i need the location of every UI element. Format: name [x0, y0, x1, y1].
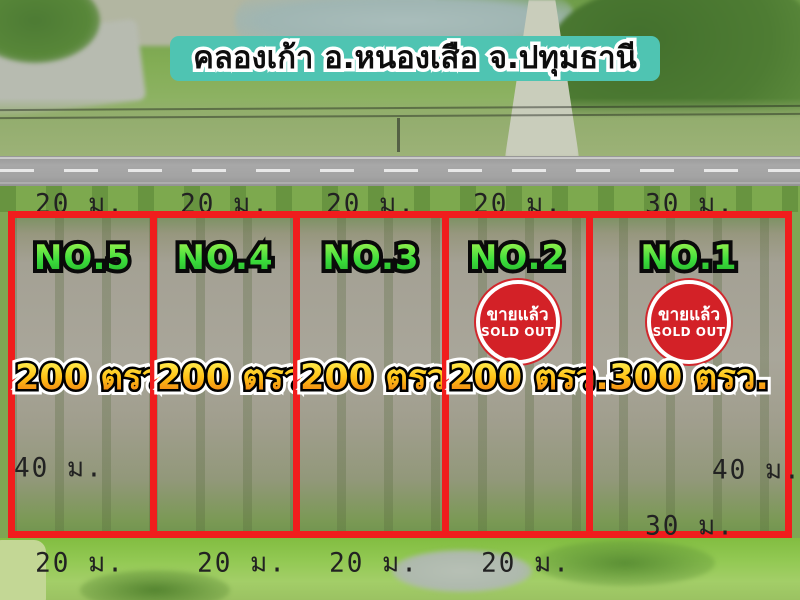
plot-name-label: NO.4NO.4	[157, 240, 293, 277]
plot-area-label: 200 ตรว.200 ตรว.200 ตรว.	[300, 359, 442, 398]
plot-no5: NO.5NO.5 200 ตรว.200 ตรว.200 ตรว.	[8, 211, 157, 538]
title-banner: คลองเก้า อ.หนองเสือ จ.ปทุมธานี คลองเก้า …	[170, 36, 660, 81]
plot-no3: NO.3NO.3 200 ตรว.200 ตรว.200 ตรว.	[293, 211, 449, 538]
depth-label-left: 40 ม.	[14, 446, 104, 489]
bottom-width-label-no4: 20 ม.	[197, 541, 287, 584]
photo-power-pole	[397, 118, 400, 152]
plot-area-label: 200 ตรว.200 ตรว.200 ตรว.	[449, 359, 586, 398]
photo-road-center-line	[0, 169, 800, 172]
plot-no2: NO.2NO.2 ขายแล้ว SOLD OUT 200 ตรว.200 ตร…	[442, 211, 593, 538]
plot-area-label: 200 ตรว.200 ตรว.200 ตรว.	[15, 359, 150, 398]
sold-out-badge: ขายแล้ว SOLD OUT	[647, 280, 731, 364]
bottom-width-label-no5: 20 ม.	[35, 541, 125, 584]
land-listing-image: คลองเก้า อ.หนองเสือ จ.ปทุมธานี คลองเก้า …	[0, 0, 800, 600]
plot-area-label: 300 ตรว.300 ตรว.300 ตรว.	[593, 359, 785, 398]
plot-name-label: NO.3NO.3	[300, 240, 442, 277]
page-title: คลองเก้า อ.หนองเสือ จ.ปทุมธานี คลองเก้า …	[193, 43, 637, 74]
plot-name-label: NO.5NO.5	[15, 240, 150, 277]
plot-name-label: NO.1NO.1	[593, 240, 785, 277]
plot-no4: NO.4NO.4 200 ตรว.200 ตรว.200 ตรว.	[150, 211, 300, 538]
photo-road-edge-line	[0, 157, 800, 159]
plot-name-label: NO.2NO.2	[449, 240, 586, 277]
bottom-width-label-no2: 20 ม.	[481, 541, 571, 584]
bottom-width-label-no3: 20 ม.	[329, 541, 419, 584]
plot-area-label: 200 ตรว.200 ตรว.200 ตรว.	[157, 359, 293, 398]
sold-out-badge: ขายแล้ว SOLD OUT	[476, 280, 560, 364]
bottom-width-label-no1: 30 ม.	[645, 504, 735, 547]
depth-label-right: 40 ม.	[712, 448, 800, 491]
